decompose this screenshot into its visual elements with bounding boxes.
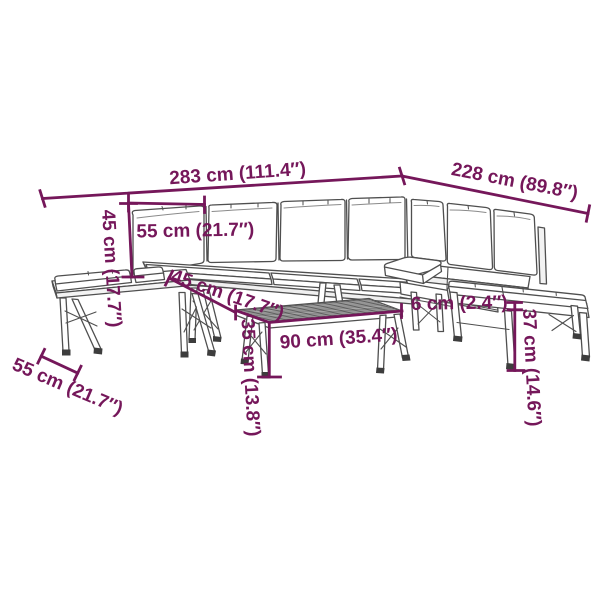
- svg-text:6 cm (2.4″): 6 cm (2.4″): [411, 292, 508, 315]
- svg-text:55 cm (21.7″): 55 cm (21.7″): [136, 219, 254, 242]
